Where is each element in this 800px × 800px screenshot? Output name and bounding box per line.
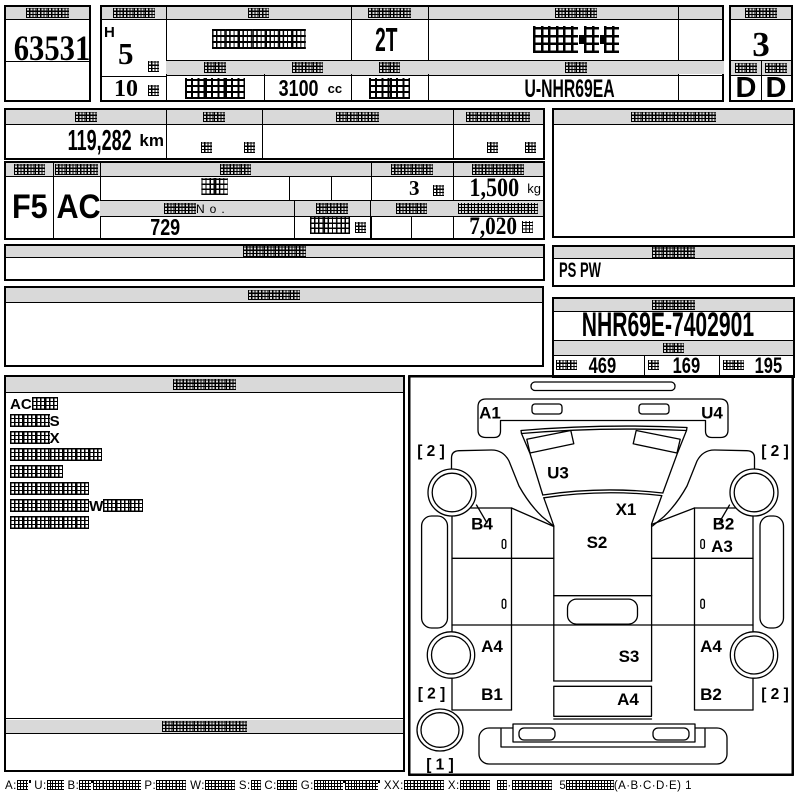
svg-text:B4: B4 — [471, 515, 493, 534]
svg-text:S3: S3 — [619, 647, 640, 666]
svg-text:A4: A4 — [617, 690, 639, 709]
svg-text:A4: A4 — [700, 637, 722, 656]
svg-text:A3: A3 — [711, 537, 733, 556]
svg-text:[ 2 ]: [ 2 ] — [761, 686, 789, 703]
svg-text:[ 2 ]: [ 2 ] — [417, 443, 445, 460]
svg-text:[ 2 ]: [ 2 ] — [761, 443, 789, 460]
svg-text:B2: B2 — [700, 685, 722, 704]
svg-text:U3: U3 — [547, 464, 569, 483]
svg-text:B1: B1 — [481, 685, 503, 704]
svg-text:A1: A1 — [479, 404, 501, 423]
svg-text:S2: S2 — [587, 533, 608, 552]
svg-text:B2: B2 — [713, 515, 735, 534]
svg-text:U4: U4 — [701, 404, 723, 423]
svg-text:X1: X1 — [616, 500, 637, 519]
svg-text:[ 2 ]: [ 2 ] — [418, 686, 446, 703]
svg-text:A4: A4 — [481, 637, 503, 656]
svg-text:[ 1 ]: [ 1 ] — [426, 757, 454, 774]
